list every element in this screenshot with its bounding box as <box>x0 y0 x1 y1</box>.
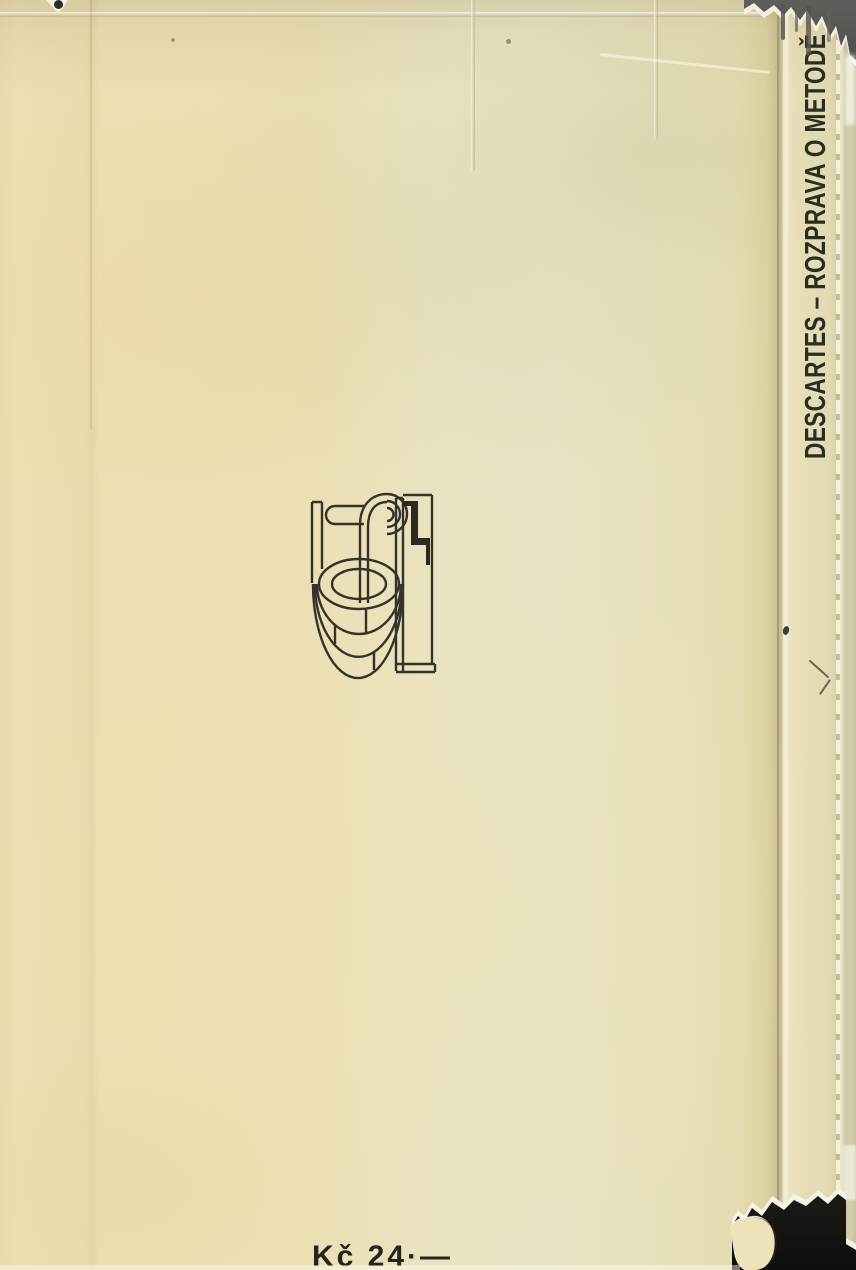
publisher-well-logo-icon <box>302 481 438 683</box>
book-jacket-back-cover-scan: DESCARTES – ROZPRAVA O METODĚ <box>0 0 856 1270</box>
ink-speck-on-spine <box>782 625 790 635</box>
spine-tear-crease-line <box>836 0 840 1270</box>
tear-drip <box>827 12 831 42</box>
tear-drip <box>795 8 798 32</box>
crease-line-left-vertical <box>90 0 92 430</box>
bottom-edge-highlight <box>0 1265 740 1270</box>
spine-title-text: DESCARTES – ROZPRAVA O METODĚ <box>799 33 833 458</box>
spine-fold-shadow-line <box>777 0 779 1270</box>
tear-drip <box>781 4 785 40</box>
tear-spot <box>54 0 63 9</box>
tear-drip <box>806 6 811 56</box>
paper-speck <box>171 38 175 42</box>
hairline-scratch <box>819 679 831 695</box>
crease-line-top-horizontal <box>0 12 768 17</box>
crease-line-right-vertical <box>654 0 658 140</box>
tear-white-highlight-bottom <box>843 1145 856 1200</box>
hairline-scratch <box>809 660 830 679</box>
crease-line-diagonal <box>600 53 769 74</box>
paper-speck <box>506 39 511 44</box>
tear-white-highlight <box>845 55 855 125</box>
crease-line-mid-vertical <box>471 0 475 170</box>
spine-title: DESCARTES – ROZPRAVA O METODĚ <box>799 0 833 526</box>
